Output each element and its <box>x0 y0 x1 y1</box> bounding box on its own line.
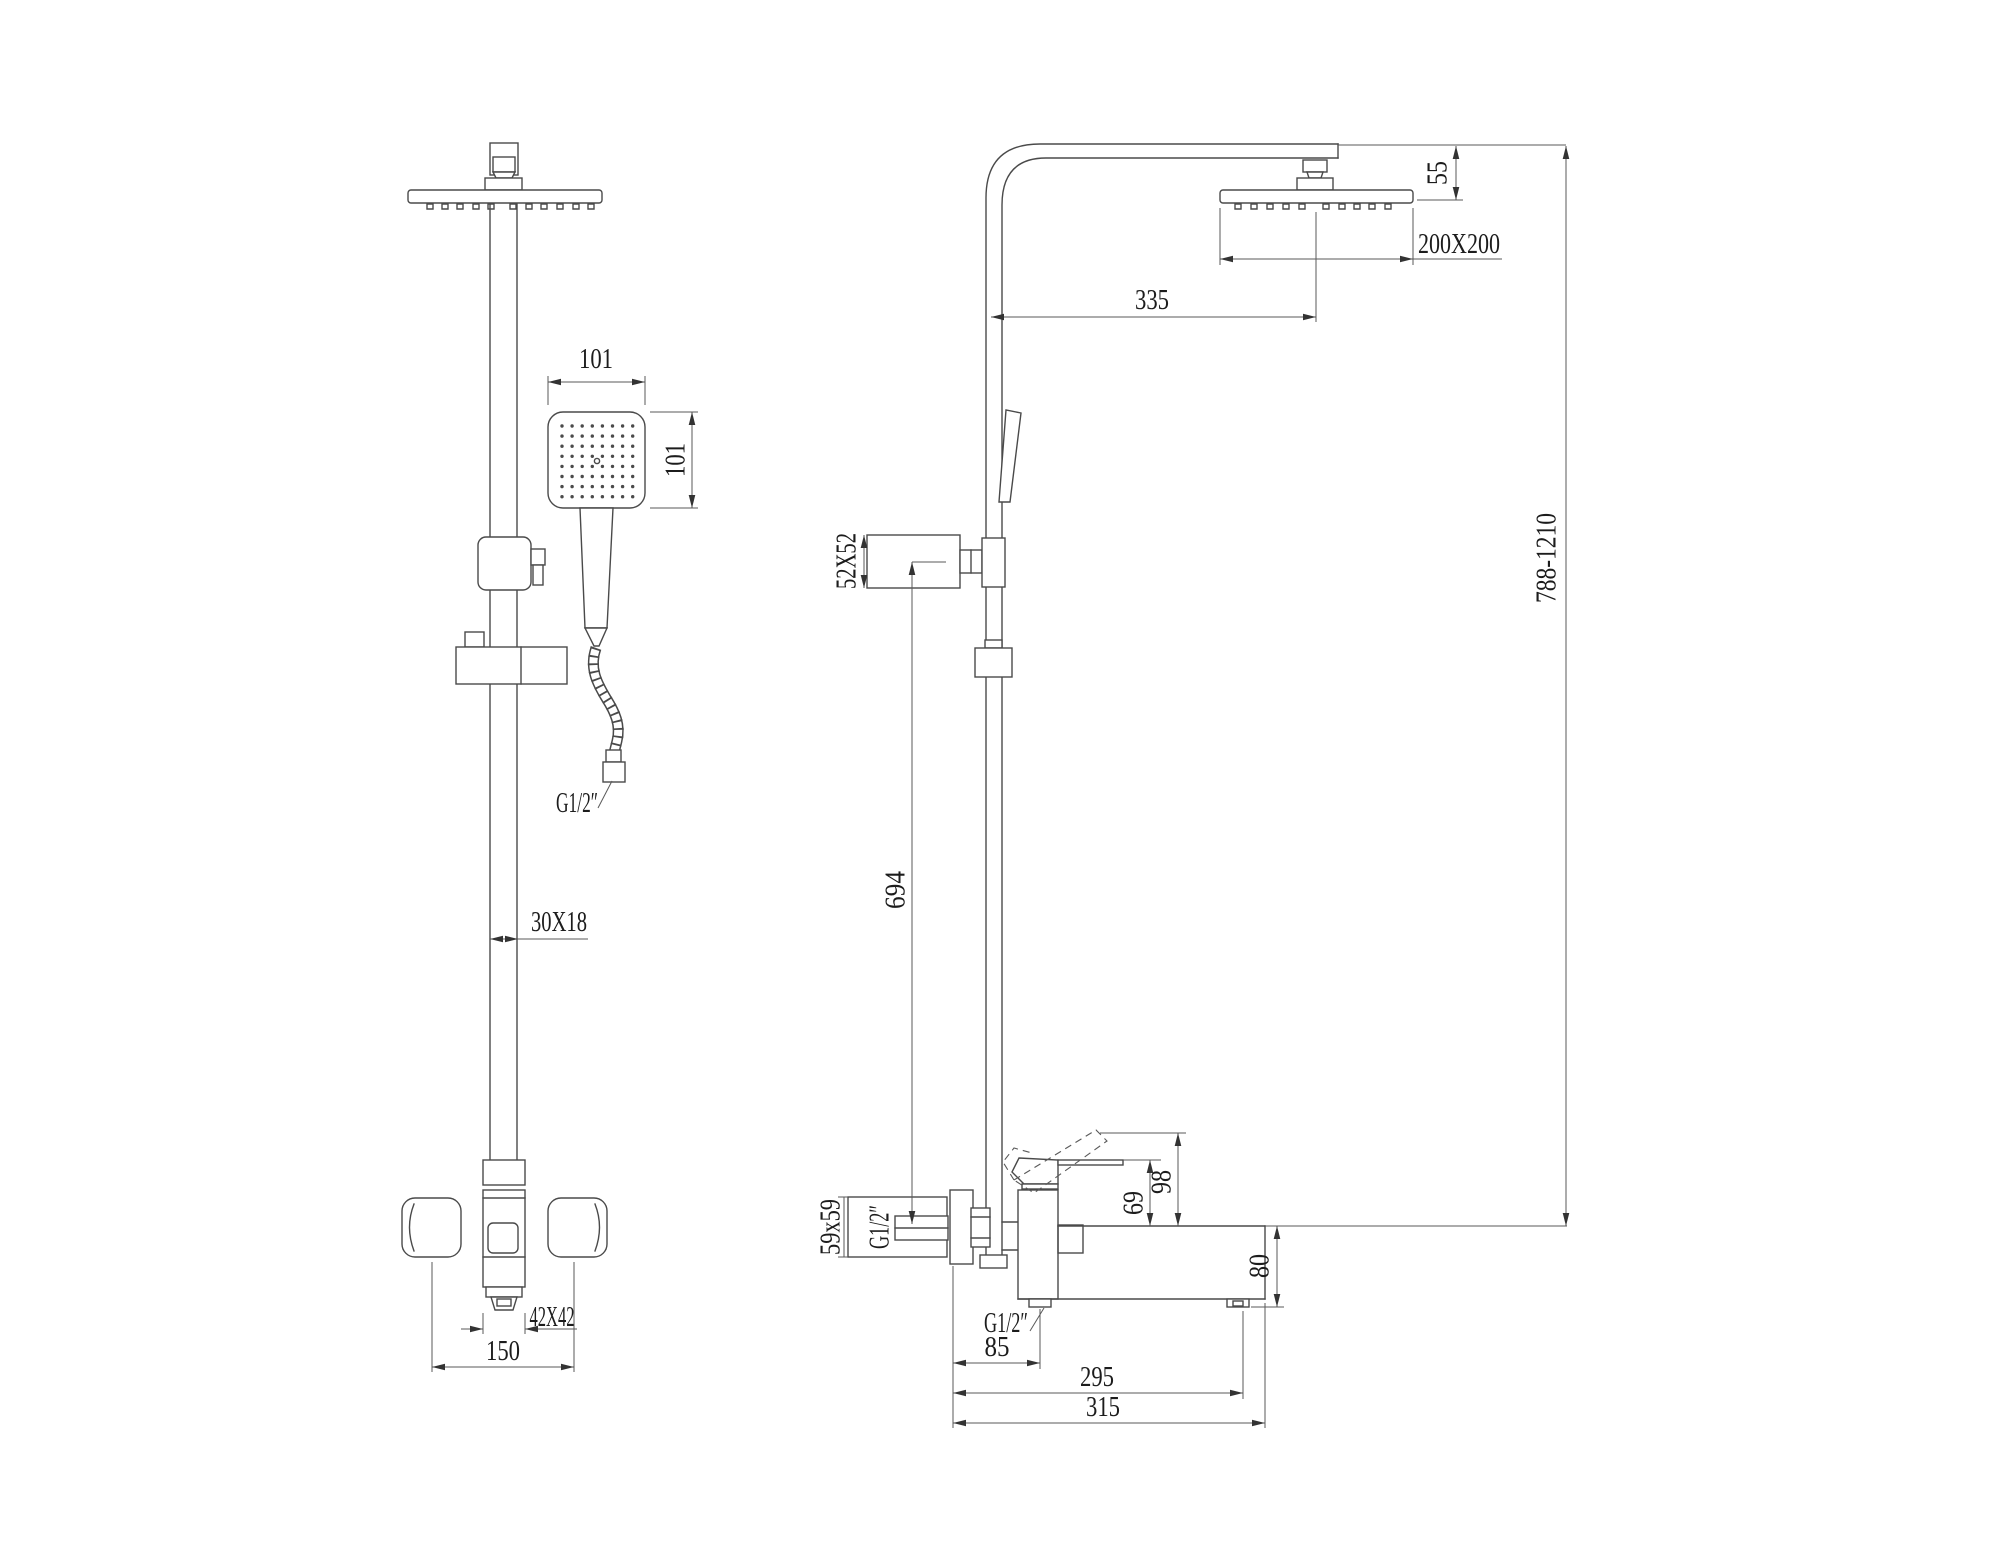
dim-hand-shower-height: 101 <box>650 412 698 508</box>
label-valve-profile: 42X42 <box>530 1302 575 1333</box>
label-hose-thread: G1/2″ <box>556 788 598 819</box>
union-hex-nut <box>971 1208 990 1247</box>
mixer-left-handle <box>402 1198 461 1257</box>
label-spout-reach: 295 <box>1080 1362 1114 1393</box>
wall-flange-plate <box>950 1190 973 1264</box>
label-wall-union-thread: G1/2″ <box>864 1205 895 1249</box>
front-mixer <box>402 1160 607 1310</box>
hose-nut <box>603 762 625 782</box>
dim-holder-profile: 52X52 <box>831 533 864 589</box>
front-hand-shower <box>548 412 645 646</box>
side-valve-body <box>1018 1190 1058 1299</box>
label-hand-shower-width: 101 <box>579 344 613 375</box>
label-lever-height: 69 <box>1118 1191 1149 1215</box>
label-spout-height: 80 <box>1244 1254 1275 1278</box>
label-head-size: 200X200 <box>1418 229 1500 260</box>
dim-hose-thread: G1/2″ <box>556 781 612 819</box>
side-rain-head <box>1220 190 1413 209</box>
dim-head-size: 200X200 <box>1220 208 1502 265</box>
hand-shower-hose-cone <box>585 628 607 646</box>
label-holder-height: 694 <box>880 871 911 909</box>
label-valve-width: 150 <box>486 1336 520 1367</box>
hose-ferrule <box>606 750 621 762</box>
front-view: 101 101 G1/2″ 30X18 42X42 150 <box>402 143 698 1372</box>
side-arm-fitting <box>1297 160 1333 190</box>
label-arm-reach: 335 <box>1135 285 1169 316</box>
front-slide-bracket <box>478 537 545 590</box>
technical-drawing-page: 101 101 G1/2″ 30X18 42X42 150 <box>0 0 2000 1545</box>
front-shower-hose <box>593 648 625 782</box>
dim-spout-height: 80 <box>1244 1226 1567 1307</box>
dim-hand-shower-width: 101 <box>548 344 645 405</box>
mixer-spout-front <box>486 1287 522 1297</box>
front-slider-holder <box>456 632 567 684</box>
dim-wall-union-profile: 59x59 <box>815 1197 848 1257</box>
shower-system-drawing: 101 101 G1/2″ 30X18 42X42 150 <box>0 0 2000 1545</box>
mixer-diverter-button <box>488 1223 518 1253</box>
label-lever-height-raised: 98 <box>1146 1170 1177 1194</box>
side-lever-down <box>1012 1158 1123 1189</box>
label-head-drop: 55 <box>1422 161 1453 185</box>
side-rain-head-nozzles <box>1235 204 1391 209</box>
side-view: 55 200X200 335 788-1210 52X52 694 <box>815 144 1567 1428</box>
label-wall-union-profile: 59x59 <box>815 1199 846 1255</box>
front-rain-head <box>408 190 602 209</box>
front-rain-head-nozzles <box>427 204 594 209</box>
label-holder-profile: 52X52 <box>831 533 862 589</box>
dim-valve-profile: 42X42 <box>461 1302 577 1334</box>
label-hand-shower-height: 101 <box>660 443 691 477</box>
hand-shower-handle <box>580 508 613 628</box>
dim-column-height-range: 788-1210 <box>1531 146 1566 1226</box>
front-ceiling-connector <box>485 143 522 190</box>
dim-pipe-profile: 30X18 <box>490 907 588 939</box>
label-outlet-offset: 85 <box>985 1332 1010 1363</box>
riser-bottom-collar <box>980 1255 1007 1268</box>
mixer-right-handle <box>548 1198 607 1257</box>
label-pipe-profile: 30X18 <box>531 907 587 938</box>
dim-arm-reach: 335 <box>991 212 1316 322</box>
label-spout-reach-total: 315 <box>1086 1392 1120 1423</box>
label-column-height-range: 788-1210 <box>1531 513 1562 603</box>
side-slider <box>975 640 1012 677</box>
hand-shower-outlet-nub <box>1029 1299 1051 1307</box>
mixer-top-flange <box>483 1160 525 1185</box>
dim-holder-height: 694 <box>880 562 946 1224</box>
side-mixer <box>1003 1130 1265 1307</box>
